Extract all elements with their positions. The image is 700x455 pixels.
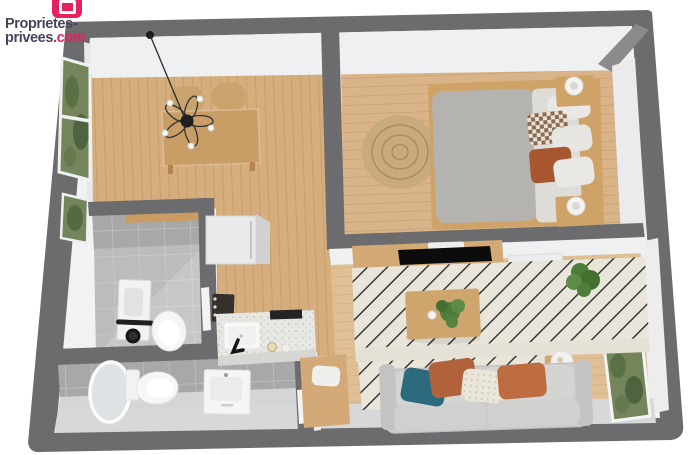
proprietes-privees-logo-icon [52, 0, 82, 18]
greenery-blob [64, 147, 76, 167]
plant-foliage [446, 316, 458, 328]
greenery-blob [67, 205, 83, 231]
lamp-shade [167, 100, 173, 106]
bathroom-small-window [61, 194, 88, 243]
bed-pillow-white [552, 155, 596, 188]
lamp-shade [197, 96, 203, 102]
vanity-basin [210, 377, 242, 402]
dining-window [59, 58, 90, 180]
greenery-blob [610, 354, 626, 378]
fridge-side [256, 214, 270, 264]
drawer-handle [221, 404, 233, 407]
table-leg [168, 165, 173, 174]
table-leg [250, 162, 255, 171]
washer-door-glass [129, 332, 138, 341]
counter-bowl-white [282, 344, 290, 352]
back-cushion [488, 398, 581, 427]
floorplan-render: Proprietes- privees.com [0, 0, 700, 455]
vanity-sink [204, 370, 251, 415]
stove-knob [213, 297, 216, 300]
greenery-blob [615, 395, 629, 413]
round-mirror [88, 361, 131, 423]
fridge [206, 214, 270, 264]
cup [428, 311, 436, 319]
back-cushion [394, 402, 487, 431]
rug-stripes [352, 257, 649, 350]
brand-line2-tld: .com [53, 30, 85, 46]
plant-foliage [451, 299, 465, 313]
counter-bowl-brass [268, 343, 277, 352]
chandelier-hub [181, 115, 194, 128]
side-table-deco [557, 357, 563, 363]
hob [270, 309, 302, 319]
plant-foliage [436, 300, 448, 312]
floorplan-svg [0, 0, 700, 455]
lamp-shade [208, 125, 214, 131]
lamp-top [570, 82, 578, 90]
brand-logo: Proprietes- privees.com [5, 0, 85, 45]
stove-knob [213, 305, 216, 308]
washer-panel [124, 288, 144, 317]
sofa [379, 357, 593, 434]
plant-foliage [577, 283, 591, 297]
desk-chair [311, 365, 340, 387]
greenery-blob [65, 76, 79, 108]
washing-machine [116, 279, 154, 343]
round-jute-rug [362, 115, 438, 189]
lamp-top [572, 202, 580, 210]
pillow-rust [497, 362, 548, 400]
kitchen-counter [216, 309, 316, 366]
lamp-shade [162, 130, 168, 136]
rattan-chair [212, 83, 246, 110]
bed-duvet [432, 88, 539, 223]
brand-line2-name: privees [5, 30, 53, 46]
rug-base [362, 115, 438, 189]
desk [300, 354, 350, 428]
wc-toilet [125, 370, 179, 406]
lamp-shade [188, 143, 194, 149]
vanity-faucet [224, 373, 228, 377]
fridge-front [206, 216, 256, 264]
sink-drain [240, 335, 243, 338]
